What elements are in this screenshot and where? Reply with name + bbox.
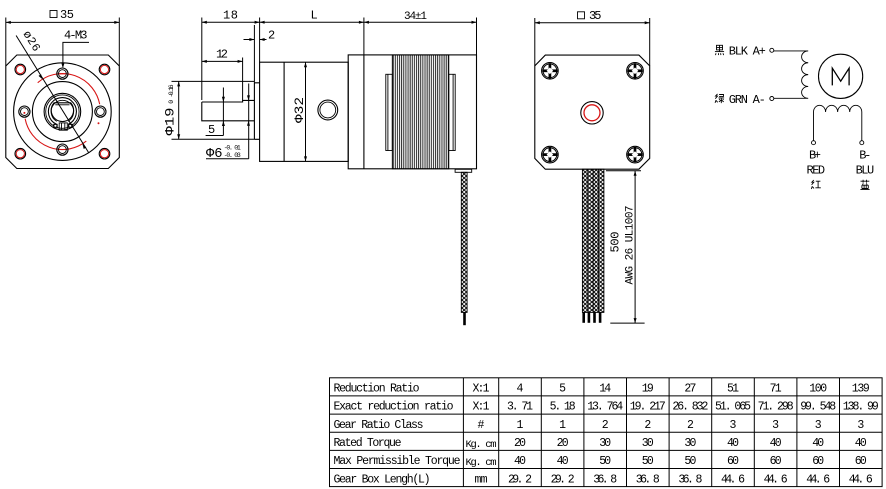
svg-text:36. 8: 36. 8 — [593, 473, 617, 486]
svg-text:AWG 26 UL1007: AWG 26 UL1007 — [625, 206, 637, 285]
svg-text:99. 548: 99. 548 — [800, 401, 836, 414]
svg-text:Kg. cm: Kg. cm — [466, 439, 497, 451]
svg-text:40: 40 — [557, 455, 569, 468]
svg-text:139: 139 — [852, 383, 870, 396]
svg-text:30: 30 — [599, 437, 611, 450]
svg-text:50: 50 — [599, 455, 611, 468]
svg-text:60: 60 — [770, 455, 782, 468]
svg-text:-0. 01: -0. 01 — [224, 145, 241, 152]
svg-text:19. 217: 19. 217 — [630, 401, 666, 414]
svg-text:40: 40 — [812, 437, 824, 450]
svg-text:12: 12 — [216, 48, 228, 62]
svg-text:RED: RED — [807, 163, 826, 177]
svg-text:14: 14 — [599, 383, 611, 396]
svg-text:30: 30 — [642, 437, 654, 450]
svg-text:50: 50 — [642, 455, 654, 468]
svg-text:44. 6: 44. 6 — [764, 473, 788, 486]
svg-text:Kg. cm: Kg. cm — [466, 457, 497, 469]
svg-text:Gear Box Lengh(L): Gear Box Lengh(L) — [334, 473, 431, 486]
svg-text:BLU: BLU — [856, 163, 875, 177]
svg-text:X:1: X:1 — [473, 401, 490, 414]
svg-text:100: 100 — [809, 383, 827, 396]
svg-text:35: 35 — [589, 9, 602, 23]
svg-text:5. 18: 5. 18 — [550, 401, 576, 414]
svg-text:40: 40 — [727, 437, 739, 450]
svg-text:L: L — [311, 9, 318, 23]
svg-text:71. 298: 71. 298 — [758, 401, 794, 414]
svg-text:2: 2 — [687, 419, 694, 432]
svg-text:19: 19 — [642, 383, 654, 396]
svg-text:B-: B- — [859, 148, 871, 162]
svg-text:44. 6: 44. 6 — [849, 473, 873, 486]
svg-text:3: 3 — [815, 419, 822, 432]
svg-text:mm: mm — [475, 473, 488, 486]
svg-text:2: 2 — [268, 29, 275, 43]
svg-text:51: 51 — [727, 383, 739, 396]
svg-text:#: # — [478, 419, 485, 432]
svg-text:44. 6: 44. 6 — [806, 473, 830, 486]
svg-text:26. 832: 26. 832 — [672, 401, 708, 414]
svg-text:36. 8: 36. 8 — [636, 473, 660, 486]
svg-text:60: 60 — [812, 455, 824, 468]
svg-text:GRN A-: GRN A- — [729, 93, 766, 107]
svg-text:Φ32: Φ32 — [292, 97, 307, 123]
svg-text:Φ19: Φ19 — [163, 108, 178, 136]
svg-text:35: 35 — [60, 8, 74, 22]
svg-text:36. 8: 36. 8 — [678, 473, 702, 486]
svg-text:18: 18 — [223, 9, 238, 23]
svg-text:40: 40 — [770, 437, 782, 450]
svg-text:20: 20 — [557, 437, 569, 450]
svg-text:34±1: 34±1 — [404, 11, 427, 23]
svg-text:4: 4 — [517, 383, 524, 396]
svg-text:B+: B+ — [809, 148, 821, 162]
svg-text:Φ6: Φ6 — [206, 147, 223, 162]
svg-text:40: 40 — [514, 455, 526, 468]
svg-text:500: 500 — [609, 232, 623, 253]
svg-text:60: 60 — [727, 455, 739, 468]
svg-text:Rated Torque: Rated Torque — [334, 437, 402, 450]
svg-text:2: 2 — [644, 419, 651, 432]
svg-text:1: 1 — [559, 419, 566, 432]
svg-text:3: 3 — [730, 419, 737, 432]
svg-text:Reduction Ratio: Reduction Ratio — [334, 383, 420, 396]
svg-text:2: 2 — [602, 419, 609, 432]
svg-text:3: 3 — [857, 419, 864, 432]
svg-text:71: 71 — [770, 383, 782, 396]
svg-text:40: 40 — [855, 437, 867, 450]
svg-text:3. 71: 3. 71 — [507, 401, 533, 414]
svg-text:4-M3: 4-M3 — [64, 29, 88, 43]
svg-text:51. 065: 51. 065 — [715, 401, 751, 414]
svg-text:-0.16: -0.16 — [168, 84, 175, 97]
svg-text:29. 2: 29. 2 — [551, 473, 575, 486]
svg-text:X:1: X:1 — [473, 383, 490, 396]
svg-text:1: 1 — [517, 419, 524, 432]
svg-text:Max Permissible Torque: Max Permissible Torque — [334, 455, 461, 468]
svg-text:-0. 03: -0. 03 — [224, 152, 241, 159]
svg-text:20: 20 — [514, 437, 526, 450]
svg-text:60: 60 — [855, 455, 867, 468]
svg-text:50: 50 — [684, 455, 696, 468]
svg-text:5: 5 — [208, 123, 215, 137]
svg-text:13. 764: 13. 764 — [587, 401, 623, 414]
svg-text:3: 3 — [772, 419, 779, 432]
svg-text:Gear Ratio Class: Gear Ratio Class — [334, 419, 424, 432]
svg-text:138. 99: 138. 99 — [843, 401, 879, 414]
svg-text:44. 6: 44. 6 — [721, 473, 745, 486]
svg-text:BLK A+: BLK A+ — [729, 45, 766, 59]
svg-text:29. 2: 29. 2 — [508, 473, 532, 486]
svg-text:30: 30 — [684, 437, 696, 450]
svg-text:0: 0 — [168, 100, 175, 104]
svg-text:27: 27 — [684, 383, 696, 396]
svg-text:Exact reduction ratio: Exact reduction ratio — [334, 401, 454, 414]
svg-text:5: 5 — [559, 383, 566, 396]
